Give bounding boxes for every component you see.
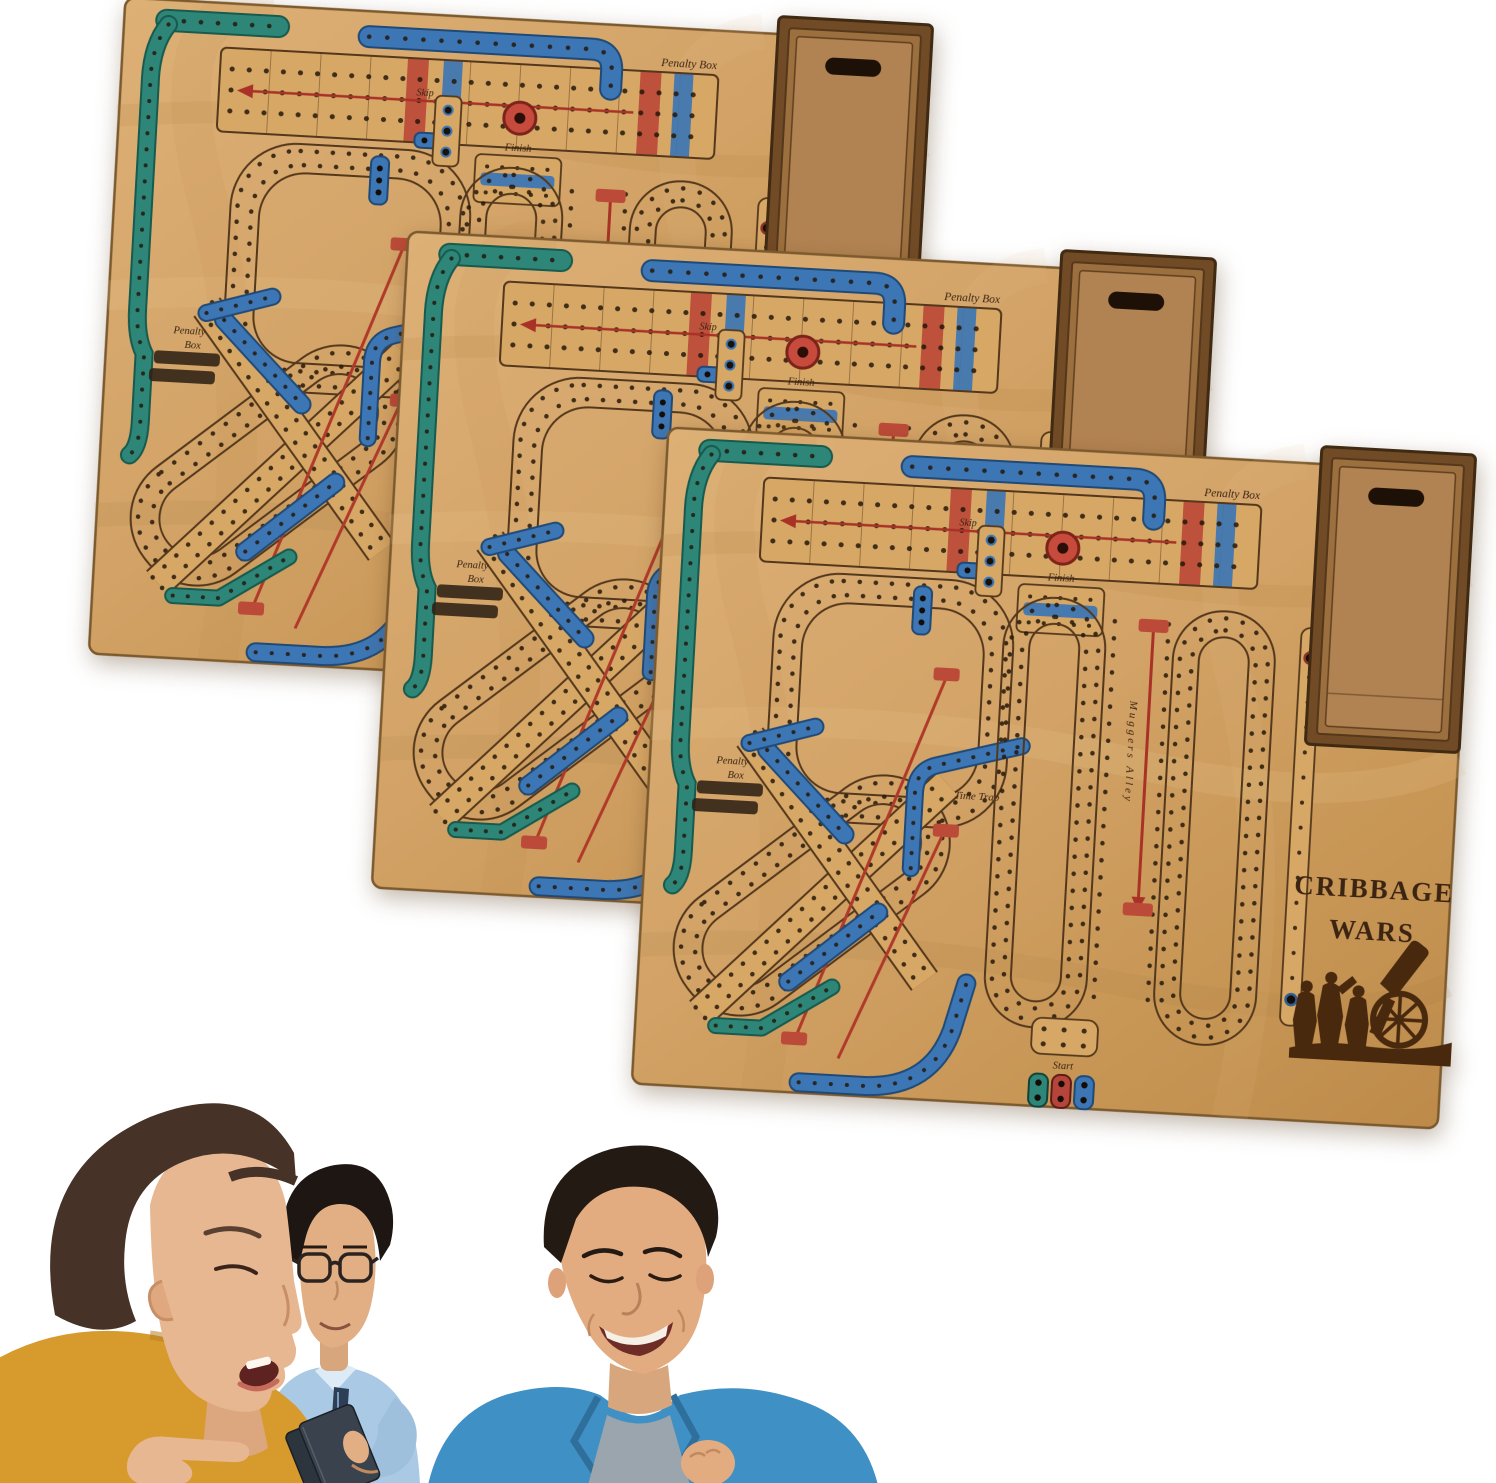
product-image: Skip Penalty Box Penalty Box Finish xyxy=(0,0,1496,1483)
player-woman xyxy=(0,1103,332,1483)
cribbage-board-front xyxy=(630,426,1476,1130)
ear xyxy=(548,1268,566,1298)
players-photo xyxy=(0,1085,900,1483)
ear xyxy=(696,1264,714,1294)
player-man-smiling xyxy=(428,1145,878,1483)
